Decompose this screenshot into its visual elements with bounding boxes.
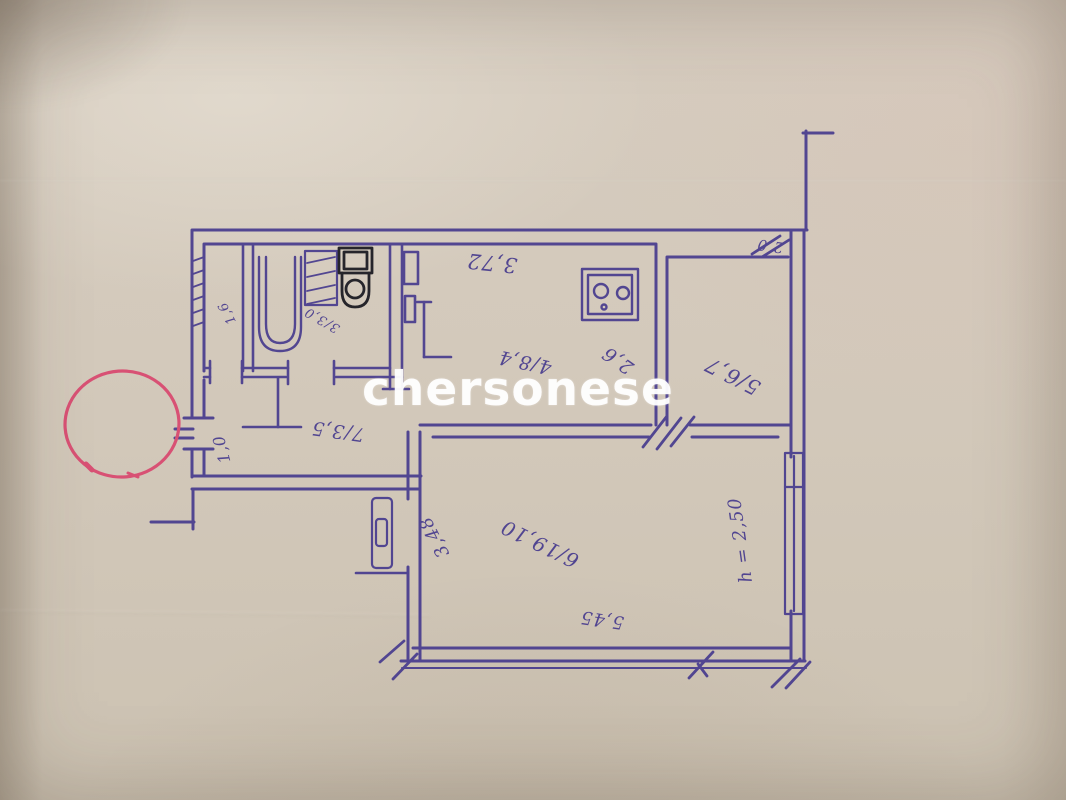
label-living-number-area: 6/19,10 (497, 515, 583, 573)
stove-burner (594, 284, 608, 298)
label-bath-number-area: 3/3,0 (302, 303, 343, 335)
label-kitchen-width: 3,72 (465, 248, 518, 277)
label-room5-number-area: 5/6,7 (701, 352, 764, 400)
red-ink-dot (86, 464, 92, 470)
stove-fixture (582, 269, 638, 320)
entrance-marker-circle (61, 367, 182, 481)
stove-burner (617, 287, 629, 299)
label-entrance-width: 1,0 (209, 433, 235, 465)
door-leaf-symbol (372, 498, 392, 568)
vent-duct (404, 252, 418, 284)
label-corner-mark: 2,0 (755, 235, 785, 257)
bathtub-fixture (259, 257, 301, 351)
vent-duct (405, 296, 415, 322)
label-wc-area: 1,6 (215, 299, 239, 327)
toilet-fixture (339, 248, 372, 307)
entrance-marker (61, 367, 182, 481)
window-symbol (785, 453, 803, 614)
watermark: chersonese (362, 366, 682, 413)
label-hall-number-area: 7/3,5 (310, 416, 366, 445)
floor-plan-photo: 3,72 2,6 2,0 5/6,7 4/8,4 7/3,5 1,0 1,6 3… (0, 0, 1066, 800)
label-living-width: 5,45 (579, 606, 626, 633)
label-ceiling-height: h = 2,50 (724, 496, 757, 584)
